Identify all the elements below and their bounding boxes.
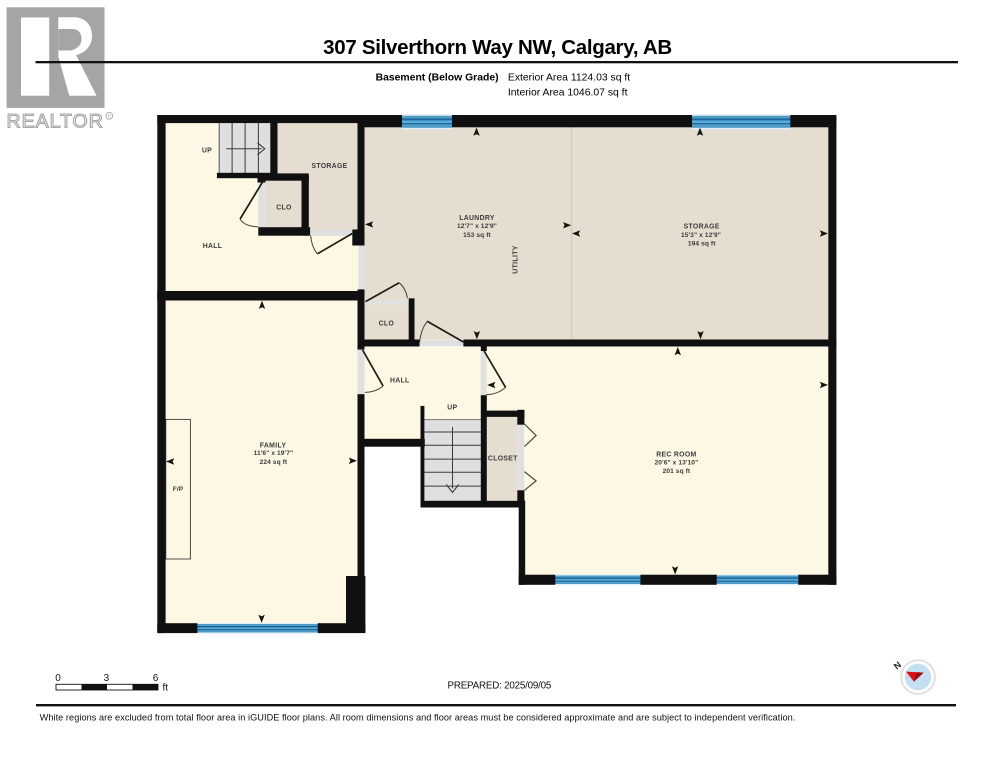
svg-text:R: R (108, 114, 112, 120)
svg-text:REALTOR: REALTOR (7, 110, 104, 132)
svg-text:F/P: F/P (173, 486, 184, 493)
svg-text:FAMILY: FAMILY (260, 442, 287, 449)
svg-text:153 sq ft: 153 sq ft (463, 232, 491, 239)
svg-text:20'6" x 13'10": 20'6" x 13'10" (655, 459, 699, 466)
svg-text:3: 3 (104, 673, 110, 684)
svg-text:224 sq ft: 224 sq ft (260, 459, 288, 466)
svg-text:N: N (892, 660, 903, 672)
svg-text:REC ROOM: REC ROOM (656, 451, 696, 458)
svg-text:6: 6 (153, 673, 159, 684)
svg-text:307 Silverthorn Way NW, Calgar: 307 Silverthorn Way NW, Calgary, AB (323, 36, 672, 59)
svg-text:UTILITY: UTILITY (513, 245, 520, 274)
svg-text:CLO: CLO (379, 320, 395, 327)
svg-text:201 sq ft: 201 sq ft (663, 468, 691, 475)
svg-text:STORAGE: STORAGE (684, 223, 720, 230)
svg-text:HALL: HALL (203, 243, 223, 250)
svg-text:UP: UP (202, 147, 212, 154)
svg-text:15'3" x 12'9": 15'3" x 12'9" (681, 232, 721, 239)
svg-text:11'6" x 19'7": 11'6" x 19'7" (254, 450, 294, 457)
svg-text:CLO: CLO (276, 205, 292, 212)
svg-text:STORAGE: STORAGE (311, 163, 347, 170)
svg-text:Basement (Below Grade): Basement (Below Grade) (376, 73, 499, 84)
svg-text:UP: UP (447, 404, 457, 411)
svg-text:0: 0 (55, 673, 61, 684)
svg-text:CLOSET: CLOSET (488, 456, 518, 463)
svg-text:Exterior Area 1124.03 sq ft: Exterior Area 1124.03 sq ft (508, 73, 630, 84)
svg-text:White regions are excluded fro: White regions are excluded from total fl… (40, 713, 796, 723)
svg-text:194 sq ft: 194 sq ft (688, 240, 716, 247)
svg-text:LAUNDRY: LAUNDRY (459, 215, 495, 222)
svg-text:ft: ft (163, 682, 169, 693)
svg-text:Interior Area 1046.07 sq ft: Interior Area 1046.07 sq ft (508, 88, 628, 99)
svg-text:HALL: HALL (390, 378, 410, 385)
svg-text:PREPARED: 2025/09/05: PREPARED: 2025/09/05 (448, 681, 552, 692)
svg-text:12'7" x 12'9": 12'7" x 12'9" (457, 223, 497, 230)
